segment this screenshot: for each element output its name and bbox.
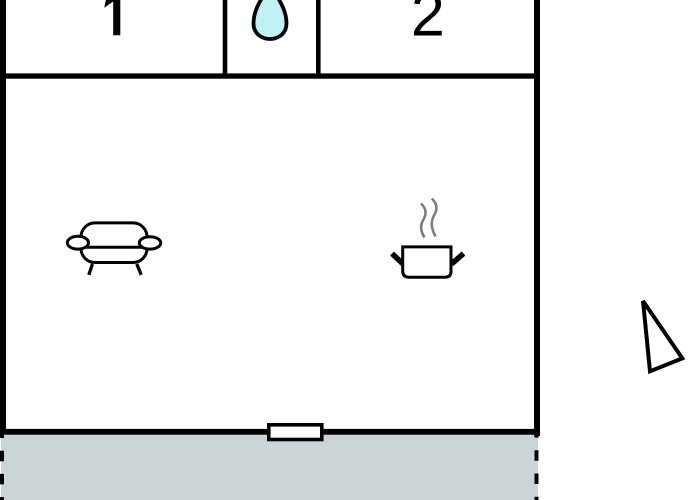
svg-text:2: 2 [411, 0, 445, 48]
